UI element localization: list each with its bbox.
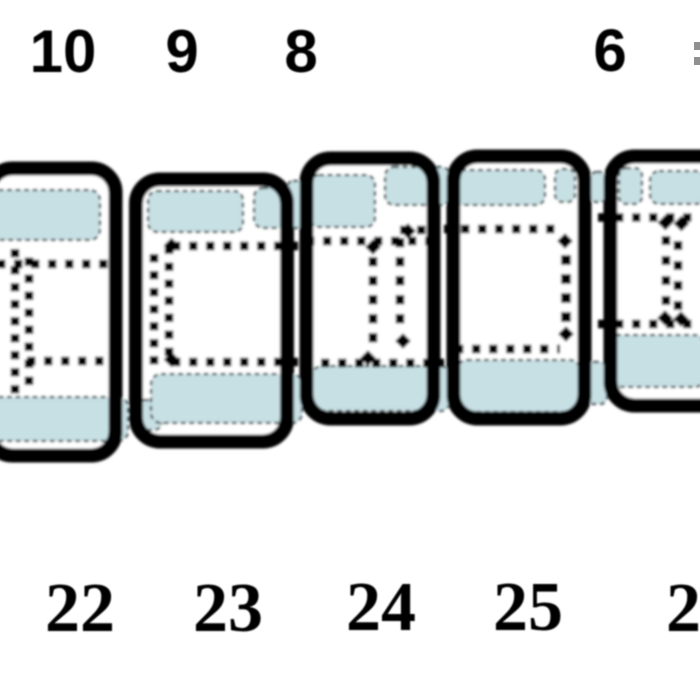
svg-text:26: 26	[666, 570, 700, 647]
svg-text:10: 10	[30, 18, 97, 85]
svg-text:25: 25	[493, 569, 563, 646]
svg-text:22: 22	[45, 570, 115, 647]
svg-text:6: 6	[593, 17, 626, 84]
svg-text:23: 23	[193, 570, 263, 647]
svg-text:8: 8	[284, 18, 317, 85]
svg-text:24: 24	[346, 569, 416, 646]
svg-text:9: 9	[165, 18, 198, 85]
